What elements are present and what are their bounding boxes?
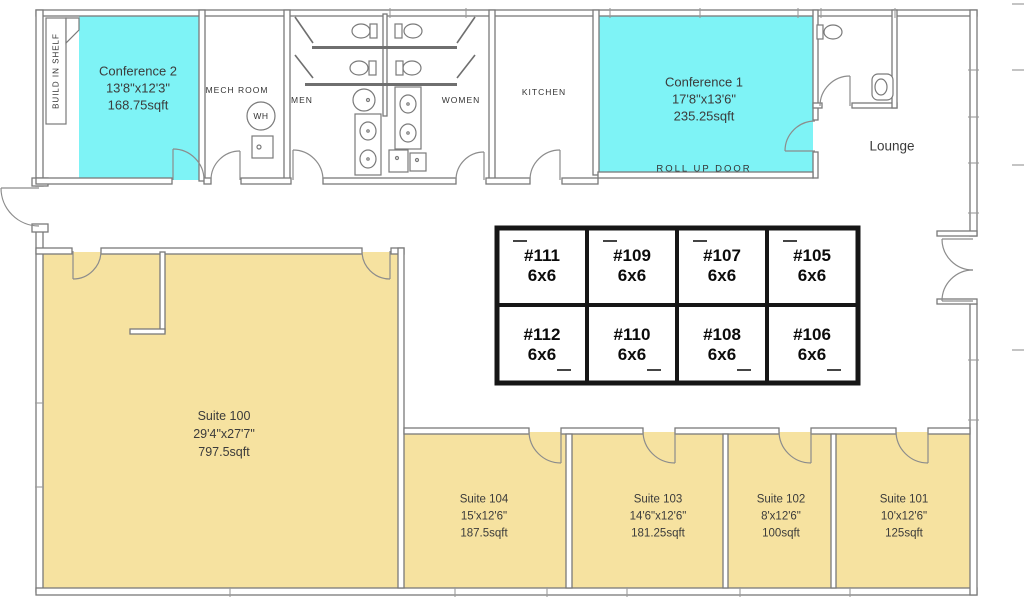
stall-door (295, 55, 313, 78)
drinking-fountain (410, 153, 426, 171)
toilet (352, 24, 377, 38)
office-label-109: #109 6x6 (613, 246, 651, 286)
room-label-conference-1: Conference 1 17'8"x13'6" 235.25sqft (665, 74, 743, 125)
room-label-suite-101: Suite 101 10'x12'6" 125sqft (880, 492, 929, 543)
toilet (396, 61, 421, 75)
room-label-women: WOMEN (442, 95, 481, 105)
toilet (350, 61, 376, 75)
floor-plan: BUILD IN SHELF Conference 2 13'8"x12'3" … (0, 0, 1024, 604)
stall-partition (312, 46, 457, 49)
mech-room-door (211, 151, 240, 180)
office-label-110: #110 6x6 (614, 325, 651, 365)
office-label-106: #106 6x6 (793, 325, 831, 365)
women-door (456, 152, 484, 180)
room-label-lounge: Lounge (869, 139, 914, 154)
roll-up-door-label: ROLL UP DOOR (656, 164, 751, 175)
stall-door (295, 17, 313, 43)
office-label-105: #105 6x6 (793, 246, 831, 286)
lounge-bathroom-door (820, 76, 850, 106)
main-entry-door-top (942, 239, 973, 270)
stall-door (457, 55, 475, 78)
room-label-suite-103: Suite 103 14'6"x12'6" 181.25sqft (630, 492, 687, 543)
room-label-kitchen: KITCHEN (522, 87, 566, 97)
stall-partition (305, 83, 457, 86)
room-label-conference-2: Conference 2 13'8"x12'3" 168.75sqft (99, 63, 177, 114)
office-label-111: #111 6x6 (524, 246, 560, 286)
office-label-108: #108 6x6 (703, 325, 741, 365)
toilet (817, 25, 842, 39)
men-door (293, 150, 323, 180)
water-heater-label: WH (253, 111, 268, 121)
room-label-mech-room: MECH ROOM (206, 85, 269, 95)
main-entry-door-bottom (942, 270, 973, 301)
office-label-107: #107 6x6 (703, 246, 741, 286)
room-label-suite-102: Suite 102 8'x12'6" 100sqft (757, 492, 806, 543)
kitchen-door (530, 150, 560, 180)
sink (353, 89, 375, 111)
drinking-fountain (389, 150, 408, 172)
office-label-112: #112 6x6 (524, 325, 561, 365)
room-label-suite-104: Suite 104 15'x12'6" 187.5sqft (460, 492, 509, 543)
shelf-notch (66, 18, 79, 43)
stall-door (457, 17, 475, 43)
room-label-men: MEN (291, 95, 313, 105)
toilet (395, 24, 422, 38)
room-label-build-in-shelf: BUILD IN SHELF (52, 33, 61, 109)
left-entry-door (1, 188, 39, 226)
room-label-suite-100: Suite 100 29'4"x27'7" 797.5sqft (193, 407, 255, 461)
mech-fixture (252, 136, 273, 158)
